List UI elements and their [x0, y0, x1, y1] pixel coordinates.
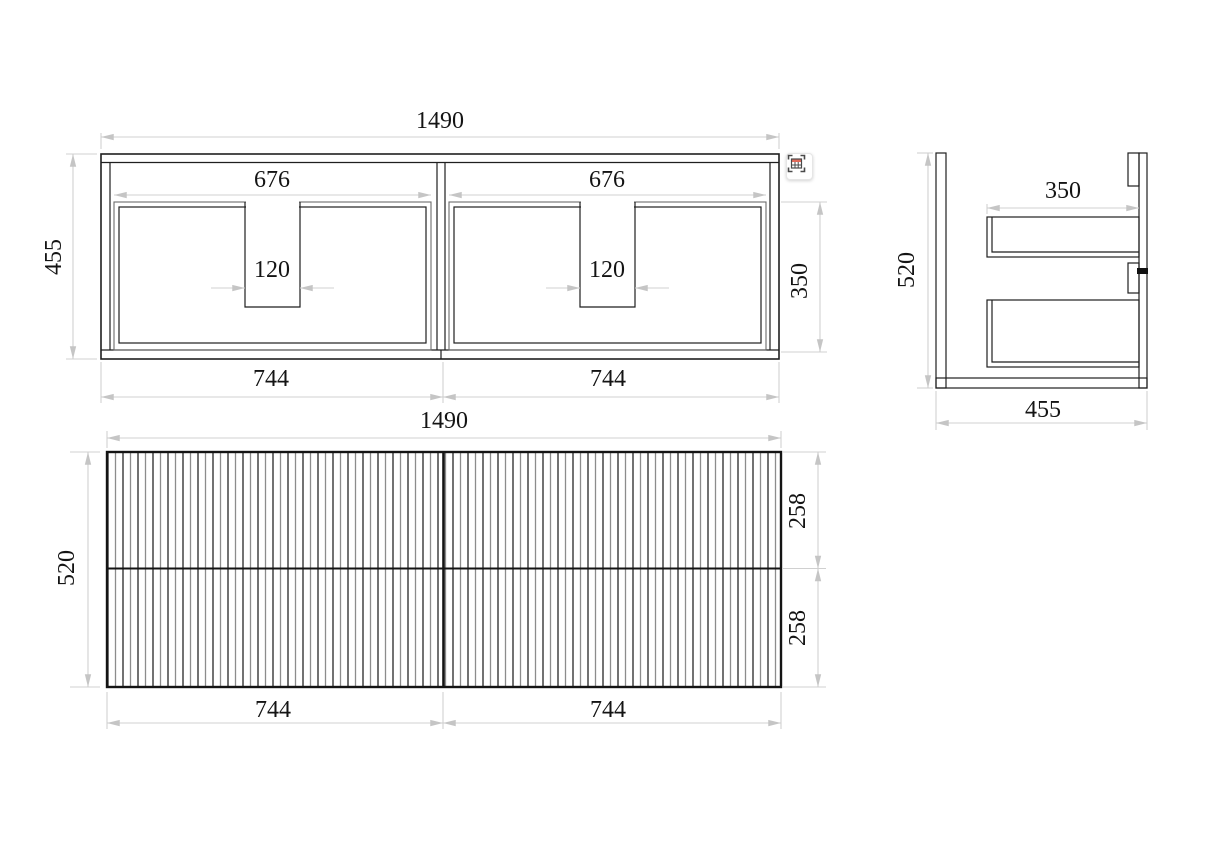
plan-dim-notch-left: 120: [254, 257, 290, 283]
side-dim-drawer-depth: 350: [1045, 178, 1081, 204]
plan-dim-notch-right: 120: [589, 257, 625, 283]
side-bottom-panel: [936, 378, 1147, 388]
side-dim-height: 520: [894, 252, 920, 288]
front-view: [107, 452, 781, 687]
front-dim-half-left: 744: [255, 697, 291, 723]
side-dim-depth-total: 455: [1025, 397, 1061, 423]
front-dim-drawer-upper: 258: [785, 493, 811, 529]
plan-dim-half-right: 744: [590, 366, 626, 392]
side-drawer-lower: [987, 300, 1139, 367]
plan-dim-opening-depth: 350: [787, 263, 813, 299]
vanity-technical-drawing: 1490 455 676 676 120 120 350 744 744: [0, 0, 1213, 846]
side-view: [936, 153, 1148, 388]
side-rail-upper: [1128, 153, 1139, 186]
drawing-canvas: 1490 455 676 676 120 120 350 744 744: [0, 0, 1213, 846]
side-back-panel: [936, 153, 946, 388]
plan-view: [101, 154, 779, 359]
front-dim-drawer-lower: 258: [785, 610, 811, 646]
side-rail-lower: [1128, 263, 1139, 293]
plan-dim-half-left: 744: [253, 366, 289, 392]
plan-dim-opening-right: 676: [589, 167, 625, 193]
front-dim-height: 520: [54, 550, 80, 586]
plan-dim-total-width: 1490: [416, 108, 464, 134]
front-dim-total-width: 1490: [420, 408, 468, 434]
table-capture-icon: [787, 154, 806, 173]
front-dim-half-right: 744: [590, 697, 626, 723]
side-drawer-upper: [987, 217, 1139, 257]
capture-button[interactable]: [786, 153, 813, 180]
plan-center-divider: [437, 163, 445, 360]
plan-dim-opening-left: 676: [254, 167, 290, 193]
plan-dim-depth: 455: [41, 239, 67, 275]
